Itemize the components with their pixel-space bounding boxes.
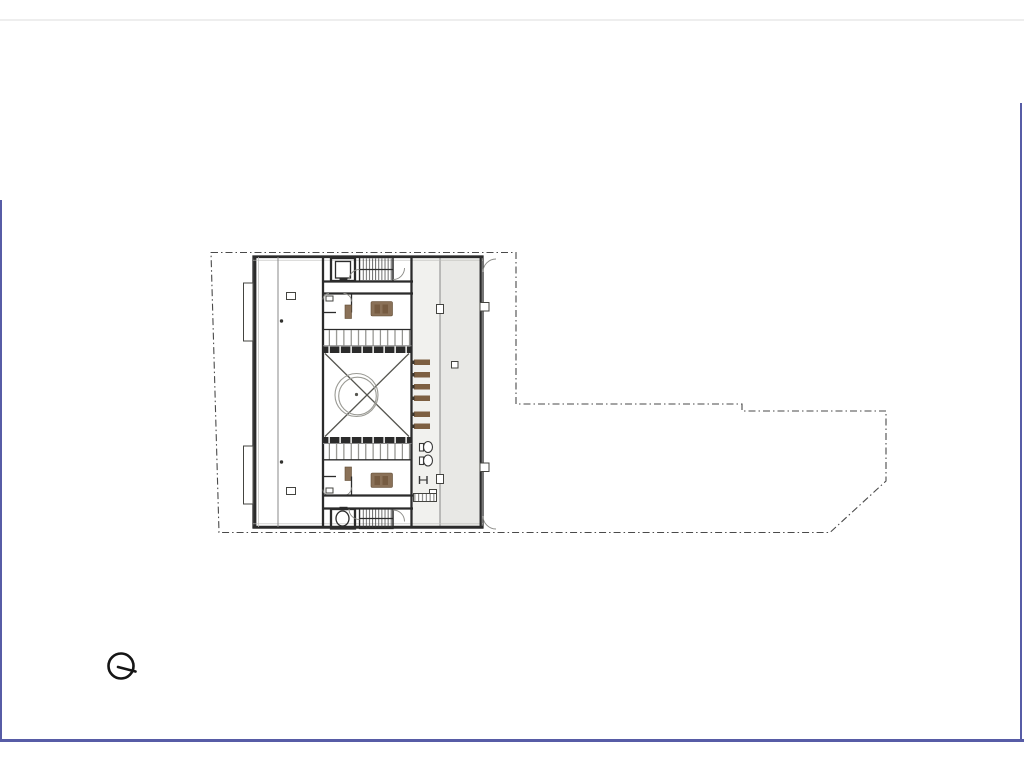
deck-louvers-bottom [324, 444, 411, 460]
facade-box-bottom [244, 446, 254, 504]
column-marker-top [287, 293, 296, 300]
east-corridor-lane [440, 257, 481, 527]
bath-fixture-top [326, 296, 333, 301]
corridor-marker-2 [452, 362, 459, 369]
grille-band-top [323, 347, 412, 354]
corridor-marker-3 [437, 475, 444, 484]
cabinet-bottom [345, 467, 352, 481]
facade-marker-top [480, 303, 489, 312]
island-table-bottom [371, 473, 393, 488]
gallery-post-top [280, 319, 283, 322]
door-swing-bottom-east [483, 516, 496, 529]
corridor-marker-1 [437, 305, 444, 314]
island-table-top [371, 302, 393, 317]
north-indicator-icon [109, 654, 136, 679]
slatted-bench [414, 494, 437, 502]
deck-louvers-top [324, 330, 411, 346]
apartment-unit-top [323, 294, 412, 346]
east-walkway-lane [413, 257, 440, 527]
site-boundary [211, 253, 886, 533]
apartment-unit-bottom [323, 444, 412, 496]
bath-fixture-bottom [326, 488, 333, 493]
facade-marker-bottom [480, 463, 489, 472]
column-marker-bottom [287, 488, 296, 495]
facade-box-top [244, 283, 254, 341]
cabinet-top [345, 305, 352, 319]
door-swing-top-east [483, 259, 496, 272]
gallery-post-bottom [280, 460, 283, 463]
courtyard-atrium [323, 347, 412, 444]
drawing-page [0, 0, 1024, 768]
floor-plan-canvas [0, 0, 1024, 768]
grille-band-bottom [323, 437, 412, 444]
